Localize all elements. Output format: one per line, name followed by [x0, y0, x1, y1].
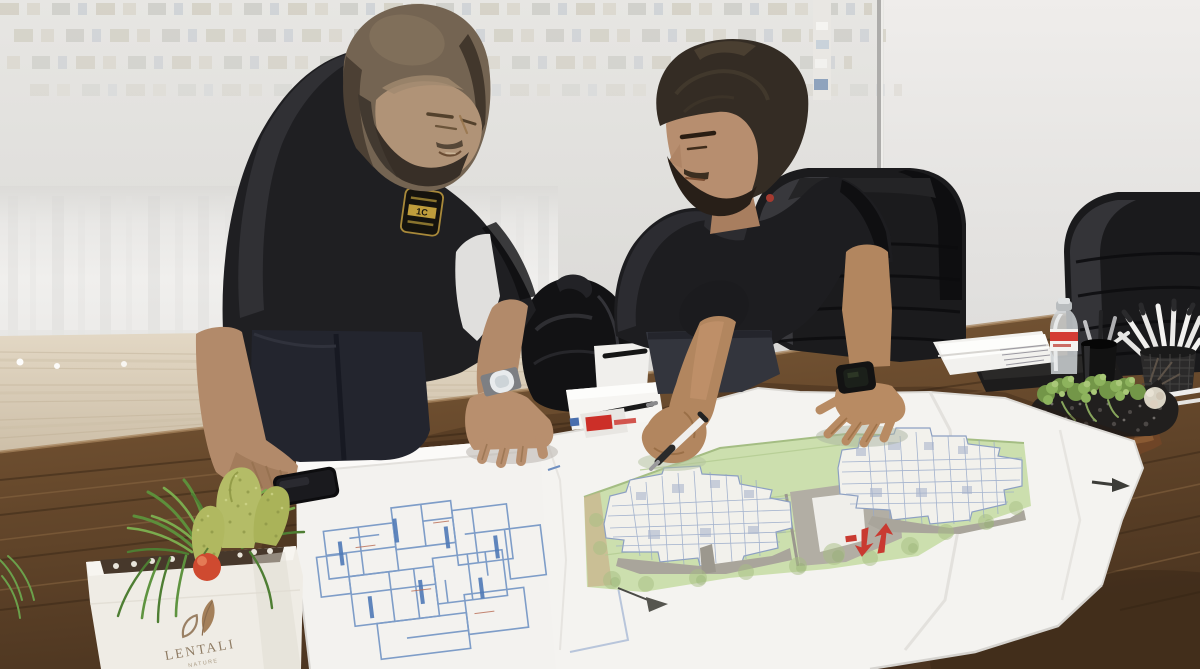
svg-text:1C: 1C: [416, 206, 429, 218]
